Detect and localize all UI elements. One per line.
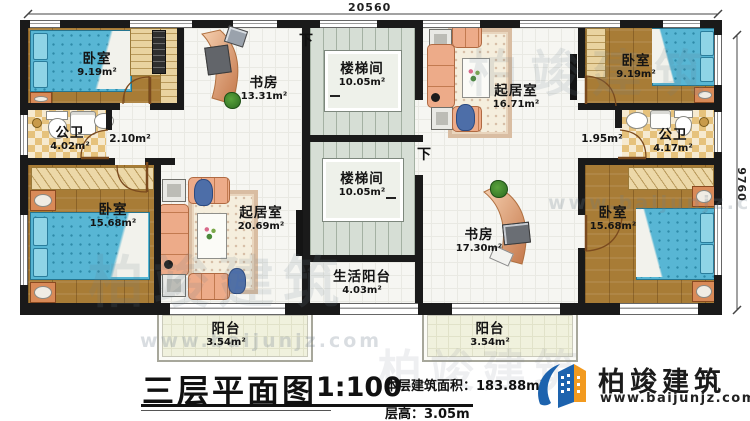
room-area: 9.19m²: [77, 67, 116, 78]
wall: [578, 20, 585, 78]
window: [520, 20, 620, 28]
window: [714, 205, 722, 275]
window: [320, 20, 377, 28]
wall: [578, 165, 585, 215]
floor-area-row: 本层建筑面积：183.88m²: [385, 375, 545, 394]
plant-icon: [490, 180, 508, 198]
room-area: 3.54m²: [470, 337, 509, 348]
room-label-stair-bottom: 楼梯间 10.05m²: [339, 172, 385, 198]
wall: [714, 20, 722, 35]
room-label-living-bottom: 起居室 20.69m²: [238, 206, 284, 232]
pillow: [700, 31, 714, 56]
wall: [20, 303, 170, 315]
table-flowers: [466, 66, 482, 84]
side-table: [431, 107, 453, 130]
room-label-study-top: 书房 13.31m²: [241, 76, 287, 102]
plant-icon: [224, 92, 241, 109]
bed-blanket: [636, 209, 670, 277]
window: [423, 20, 480, 28]
room-area: 16.71m²: [493, 99, 539, 110]
room-name: 楼梯间: [339, 172, 385, 187]
wall: [415, 175, 423, 262]
wall: [20, 20, 28, 115]
towel-hook-icon: [699, 117, 709, 127]
stair-down-label: 下: [299, 30, 313, 50]
room-name: 公卫: [653, 128, 692, 143]
wall: [615, 110, 622, 128]
floor-height-value: 3.05m: [424, 407, 470, 421]
wall: [154, 165, 161, 307]
room-label-stair-top: 楼梯间 10.05m²: [339, 62, 385, 88]
shelf-unit: [152, 30, 166, 74]
wall: [150, 103, 184, 110]
room-area: 15.68m²: [90, 218, 136, 229]
side-table: [162, 274, 186, 297]
floor-area-label: 本层建筑面积：: [385, 379, 476, 394]
room-area: 4.03m²: [333, 285, 391, 296]
room-area: 20.69m²: [238, 221, 284, 232]
person-figure: [194, 179, 213, 206]
room-name: 卧室: [590, 206, 636, 221]
wall: [578, 158, 722, 165]
wall: [620, 20, 663, 28]
room-label-living-top: 起居室 16.71m²: [493, 84, 539, 110]
window: [714, 112, 722, 152]
hall-area-label: 1.95m²: [581, 133, 622, 145]
room-name: 卧室: [77, 52, 116, 67]
window: [233, 20, 277, 28]
room-label-bedroom-bottom-right: 卧室 15.68m²: [590, 206, 636, 232]
room-area: 4.17m²: [653, 143, 692, 154]
nightstand: [692, 281, 716, 302]
floor-height-row: 层高：3.05m: [385, 403, 470, 421]
pillow: [33, 33, 48, 60]
pillow: [33, 61, 48, 88]
room-area: 17.30m²: [456, 243, 502, 254]
wall: [60, 20, 130, 28]
window: [130, 20, 192, 28]
wardrobe: [586, 28, 606, 78]
floor-height-label: 层高：: [385, 407, 424, 421]
wall: [578, 248, 585, 307]
window: [20, 115, 28, 155]
towel-hook-icon: [32, 118, 42, 128]
pillow: [33, 248, 48, 277]
brand-site: www.baijunjz.com: [600, 391, 750, 406]
floor-lamp-icon: [431, 93, 440, 102]
wall: [277, 20, 320, 28]
person-figure: [456, 104, 475, 131]
nightstand: [692, 186, 716, 207]
floor-lamp-icon: [164, 260, 173, 269]
dimension-right: 9760: [735, 167, 748, 202]
window: [20, 215, 28, 285]
side-table: [162, 179, 186, 202]
wall: [415, 262, 423, 303]
pillow: [33, 217, 48, 246]
balcony-door-window: [452, 303, 560, 315]
wall: [285, 303, 340, 315]
wall: [560, 303, 620, 315]
wall: [20, 103, 120, 110]
brand-logo-icon: [534, 356, 594, 412]
window: [663, 20, 700, 28]
room-label-bedroom-top-right: 卧室 9.19m²: [616, 54, 655, 80]
room-label-bedroom-bottom-left: 卧室 15.68m²: [90, 203, 136, 229]
room-label-bedroom-top-left: 卧室 9.19m²: [77, 52, 116, 78]
room-label-bath-left: 公卫 4.02m²: [50, 126, 89, 152]
wall: [106, 110, 112, 130]
window: [714, 35, 722, 85]
wall: [418, 303, 452, 315]
room-label-study-bottom: 书房 17.30m²: [456, 228, 502, 254]
room-label-bath-right: 公卫 4.17m²: [653, 128, 692, 154]
room-name: 卧室: [616, 54, 655, 69]
room-area: 9.19m²: [616, 69, 655, 80]
nightstand: [30, 190, 56, 211]
window: [340, 303, 418, 315]
room-name: 起居室: [238, 206, 284, 221]
wall: [698, 303, 722, 315]
room-area: 13.31m²: [241, 91, 287, 102]
computer-tower: [204, 44, 232, 75]
wall: [302, 135, 423, 142]
room-name: 起居室: [493, 84, 539, 99]
room-area: 10.05m²: [339, 77, 385, 88]
person-figure: [228, 268, 246, 294]
room-label-balcony-left: 阳台 3.54m²: [206, 322, 245, 348]
wall: [480, 20, 520, 28]
room-area: 3.54m²: [206, 337, 245, 348]
tv: [296, 210, 303, 256]
room-name: 书房: [456, 228, 502, 243]
window: [620, 303, 698, 315]
room-name: 公卫: [50, 126, 89, 141]
room-name: 卧室: [90, 203, 136, 218]
pillow: [700, 213, 714, 243]
wall: [192, 20, 233, 28]
monitor: [502, 222, 531, 246]
room-name: 阳台: [206, 322, 245, 337]
wall: [415, 20, 423, 100]
tv: [570, 54, 577, 100]
title-rule-thin: [141, 410, 331, 411]
pillow: [700, 57, 714, 82]
wall: [578, 103, 722, 110]
nightstand: [694, 87, 716, 103]
room-area: 4.02m²: [50, 141, 89, 152]
table-flowers: [202, 224, 218, 242]
wall: [20, 158, 115, 165]
hall-area-label: 2.10m²: [109, 133, 150, 145]
armchair: [188, 273, 230, 300]
room-name: 楼梯间: [339, 62, 385, 77]
wall: [177, 20, 184, 110]
room-name: 书房: [241, 76, 287, 91]
nightstand: [30, 282, 56, 303]
room-label-balcony-right: 阳台 3.54m²: [470, 322, 509, 348]
floor-plan: 柏竣建筑 www.baijunjz.com 柏竣建筑 www.baijunjz.…: [0, 0, 750, 421]
window: [30, 20, 60, 28]
dimension-top: 20560: [348, 1, 391, 14]
sink-icon: [626, 112, 648, 129]
room-area: 10.05m²: [339, 187, 385, 198]
wall: [145, 158, 175, 165]
bed-blanket: [652, 29, 682, 83]
wardrobe: [31, 167, 154, 190]
balcony-door-window: [170, 303, 285, 315]
room-area: 15.68m²: [590, 221, 636, 232]
room-name: 阳台: [470, 322, 509, 337]
room-label-service-balcony: 生活阳台 4.03m²: [333, 270, 391, 296]
pillow: [700, 244, 714, 274]
wall: [302, 255, 423, 262]
room-name: 生活阳台: [333, 270, 391, 285]
stair-down-label: 下: [417, 144, 431, 164]
